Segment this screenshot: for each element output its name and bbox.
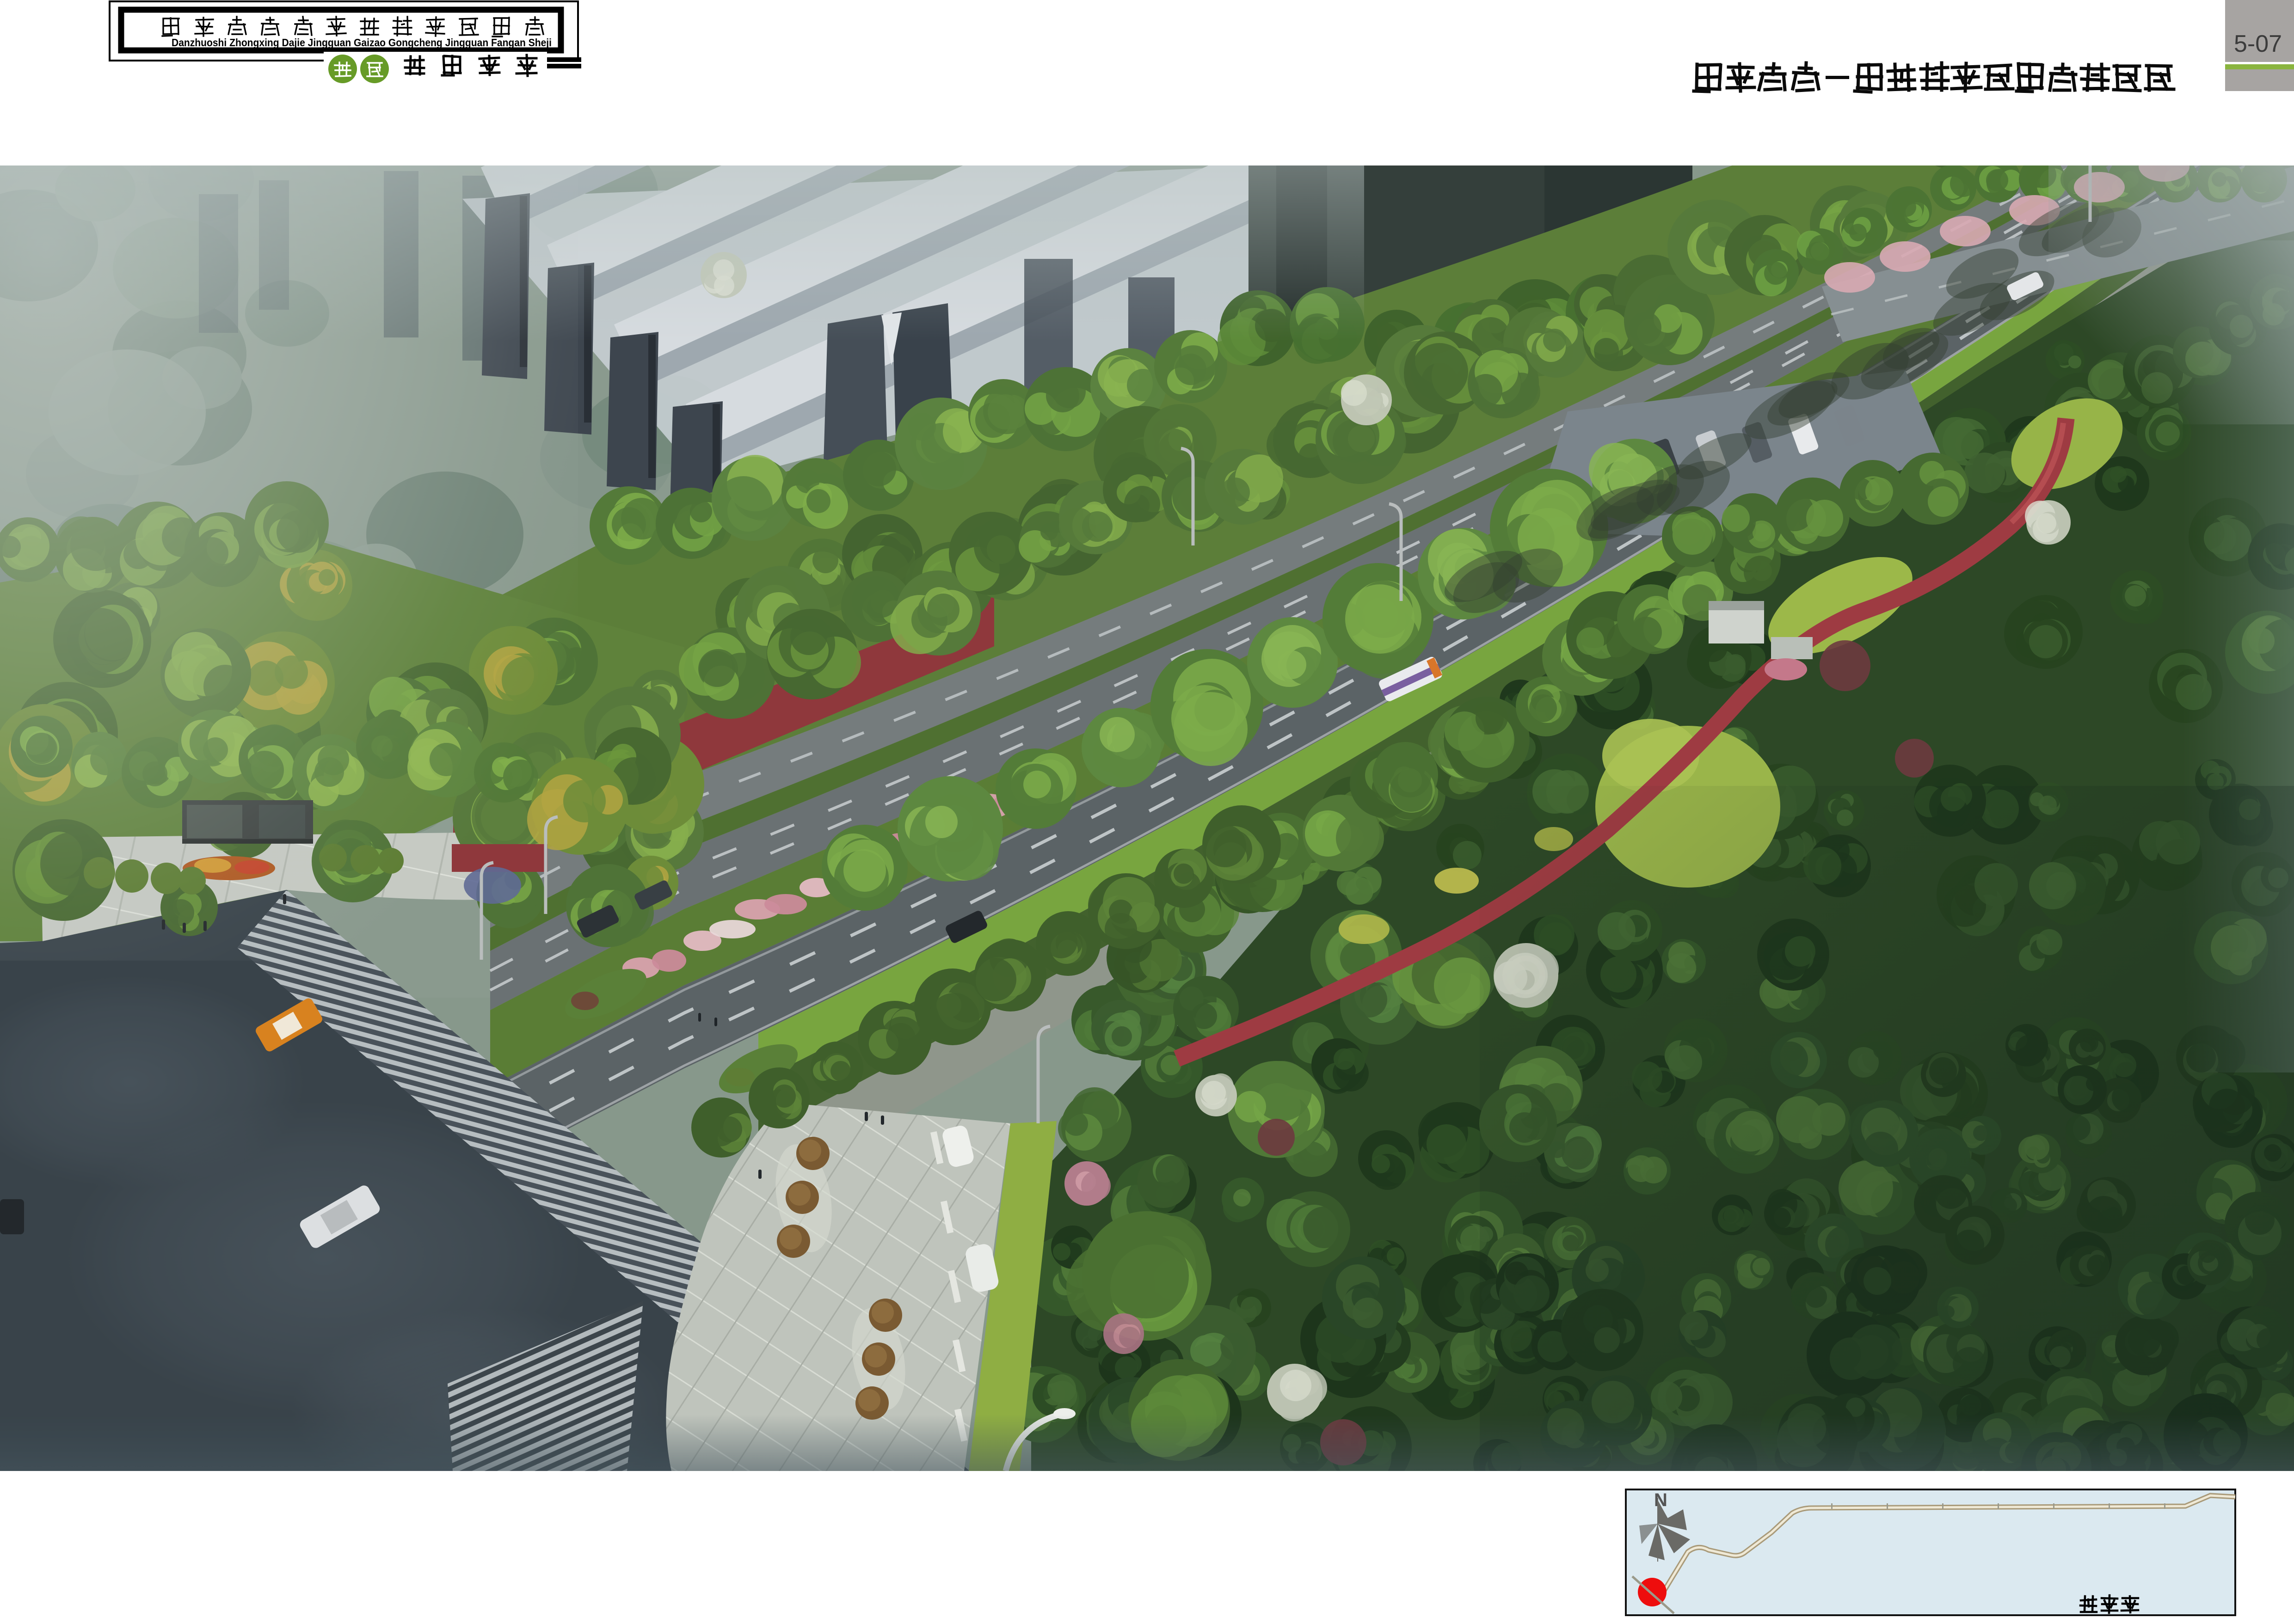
svg-text:Danzhuoshi Zhongxing Dajie Jin: Danzhuoshi Zhongxing Dajie Jingguan Gaiz… — [172, 37, 552, 49]
svg-text:5-07: 5-07 — [2234, 31, 2282, 57]
